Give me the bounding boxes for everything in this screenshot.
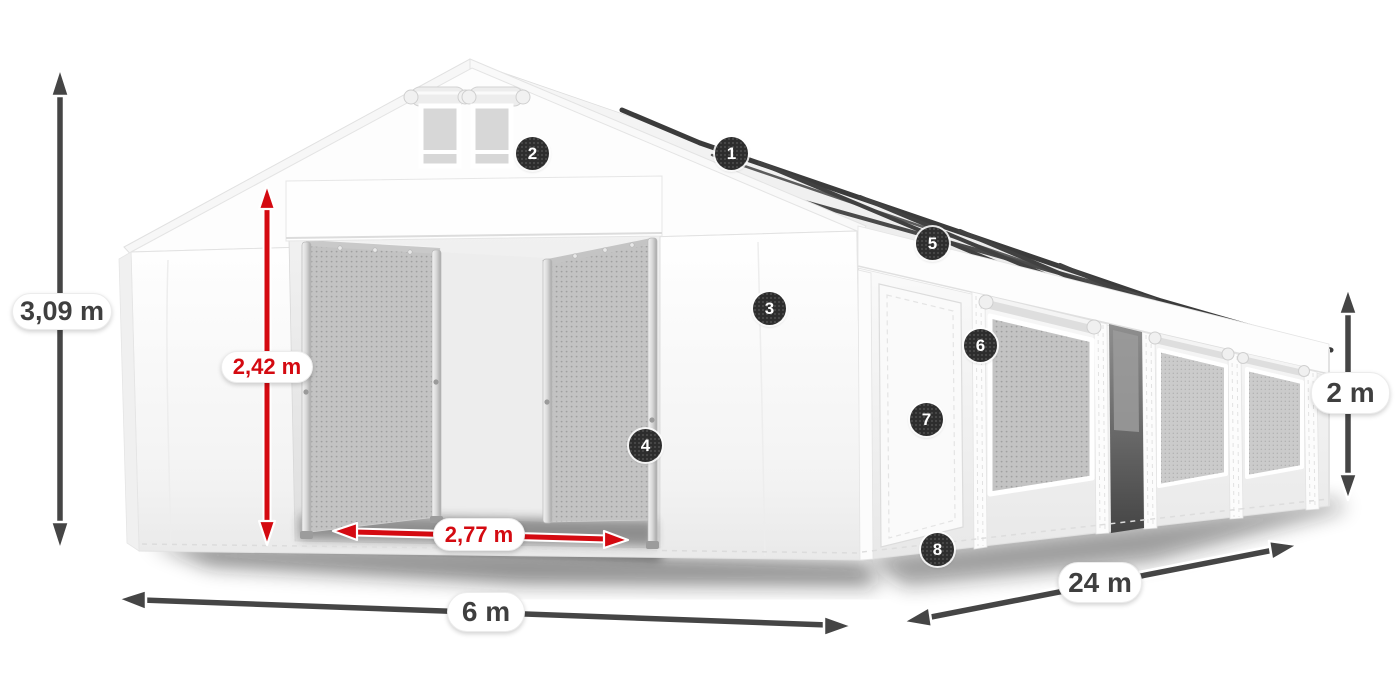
callout-badge-5[interactable]: 5 [916, 227, 949, 260]
callout-badge-4[interactable]: 4 [629, 429, 662, 462]
callout-badge-2[interactable]: 2 [516, 137, 549, 170]
vent-window-left [421, 106, 459, 166]
width-label: 6 m [447, 592, 525, 632]
side-height-label: 2 m [1311, 372, 1390, 414]
callout-badge-7[interactable]: 7 [910, 403, 943, 436]
interior-mesh-right [543, 238, 652, 522]
entrance-valance [286, 176, 662, 241]
total-height-label: 3,09 m [12, 293, 112, 330]
length-label: 24 m [1058, 562, 1142, 603]
interior-mesh-left [306, 240, 440, 532]
tent-illustration [0, 0, 1400, 700]
callout-badge-3[interactable]: 3 [753, 292, 786, 325]
callout-badge-6[interactable]: 6 [964, 329, 997, 362]
callout-badge-1[interactable]: 1 [715, 137, 748, 170]
side-open-doorway [1109, 324, 1144, 533]
vent-window-right [473, 106, 511, 166]
door-height-label: 2,42 m [221, 351, 313, 383]
door-width-label: 2,77 m [433, 518, 525, 551]
tent-body [119, 59, 1331, 560]
callout-badge-8[interactable]: 8 [921, 533, 954, 566]
tent-dimensions-diagram: 3,09 m 2,42 m 2,77 m 6 m 24 m 2 m 1 2 3 … [0, 0, 1400, 700]
